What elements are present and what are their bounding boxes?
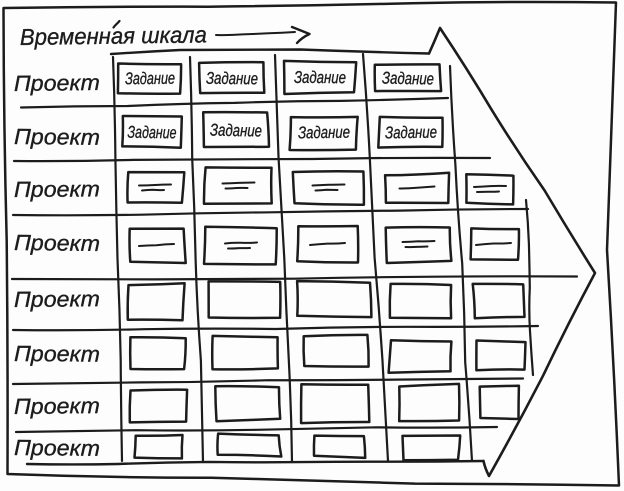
svg-text:Проект: Проект xyxy=(14,435,100,461)
svg-text:Задание: Задание xyxy=(210,121,262,141)
svg-text:Задание: Задание xyxy=(382,69,434,89)
svg-text:Проект: Проект xyxy=(14,393,100,419)
svg-text:Проект: Проект xyxy=(14,286,100,312)
svg-text:Временная шкала: Временная шкала xyxy=(20,21,207,50)
svg-text:Проект: Проект xyxy=(14,341,100,367)
svg-text:Задание: Задание xyxy=(294,68,346,87)
svg-text:Проект: Проект xyxy=(14,230,100,256)
svg-text:Задание: Задание xyxy=(385,123,437,143)
svg-text:Задание: Задание xyxy=(298,123,350,143)
svg-text:Проект: Проект xyxy=(14,176,100,202)
svg-text:Задание: Задание xyxy=(206,69,258,89)
svg-text:Задание: Задание xyxy=(125,69,175,89)
svg-text:Проект: Проект xyxy=(14,70,100,96)
svg-text:Проект: Проект xyxy=(14,124,100,150)
svg-text:Задание: Задание xyxy=(127,123,176,143)
